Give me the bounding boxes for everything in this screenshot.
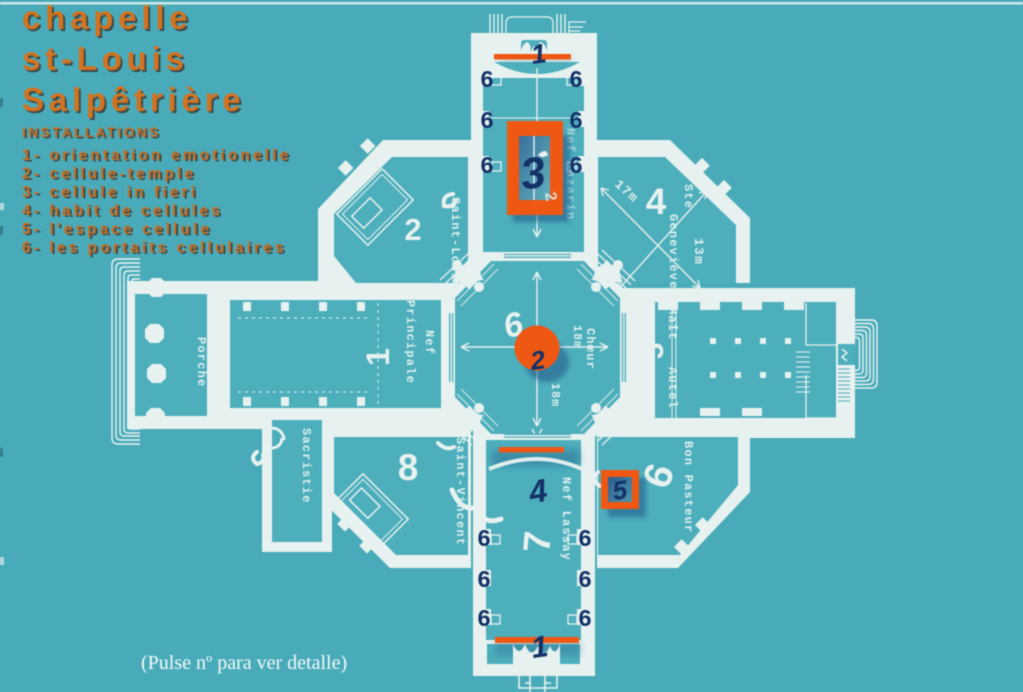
svg-text:Bon Pasteur: Bon Pasteur [681, 441, 695, 533]
svg-text:6: 6 [477, 525, 490, 551]
svg-text:Geneviève: Geneviève [666, 214, 680, 290]
svg-text:6: 6 [578, 566, 591, 592]
svg-text:6: 6 [477, 566, 490, 592]
svg-text:Saint-Louis: Saint-Louis [448, 197, 462, 289]
svg-text:13m: 13m [691, 238, 706, 265]
svg-text:6: 6 [569, 152, 582, 178]
svg-text:INSTALLATIONS: INSTALLATIONS [22, 125, 161, 140]
svg-text:6: 6 [480, 66, 493, 92]
svg-text:4- habit de cellules: 4- habit de cellules [22, 203, 223, 220]
svg-text:5: 5 [637, 343, 670, 360]
svg-text:2: 2 [404, 212, 421, 247]
svg-text:18m: 18m [570, 325, 583, 349]
svg-text:8: 8 [398, 447, 419, 488]
svg-text:Ste: Ste [681, 184, 695, 209]
svg-text:6: 6 [578, 605, 591, 631]
svg-text:4: 4 [646, 181, 667, 222]
svg-text:6: 6 [477, 605, 490, 631]
svg-text:18m: 18m [548, 383, 561, 407]
svg-text:chapelle: chapelle [22, 0, 192, 36]
svg-text:Nef Lassay: Nef Lassay [559, 477, 573, 561]
svg-text:6: 6 [569, 66, 582, 92]
svg-text:6: 6 [578, 525, 591, 551]
svg-text:7: 7 [516, 530, 560, 555]
svg-text:6- les portaits cellulaires: 6- les portaits cellulaires [22, 240, 287, 257]
svg-text:3- cellule in fieri: 3- cellule in fieri [22, 184, 198, 201]
svg-text:1- orientation emotionelle: 1- orientation emotionelle [22, 147, 291, 164]
svg-text:6: 6 [480, 107, 493, 133]
svg-text:Autel: Autel [665, 367, 679, 409]
svg-text:Porche: Porche [194, 337, 208, 387]
svg-text:5- l'espace cellule: 5- l'espace cellule [22, 221, 212, 238]
svg-text:Sacristie: Sacristie [299, 428, 313, 504]
svg-text:Nef: Nef [422, 330, 436, 355]
svg-text:Salpêtrière: Salpêtrière [22, 81, 245, 118]
svg-text:2- cellule-temple: 2- cellule-temple [22, 166, 196, 183]
svg-text:Maît: Maît [665, 307, 679, 341]
svg-text:st-Louis: st-Louis [22, 40, 189, 77]
svg-text:6: 6 [480, 152, 493, 178]
svg-text:Principale: Principale [403, 300, 417, 384]
svg-text:Chœur: Chœur [583, 328, 597, 370]
svg-text:Saint-Vincent: Saint-Vincent [453, 437, 467, 546]
svg-text:6: 6 [569, 107, 582, 133]
svg-text:(Pulse nº para ver detalle): (Pulse nº para ver detalle) [141, 652, 347, 674]
svg-text:1: 1 [360, 348, 396, 366]
